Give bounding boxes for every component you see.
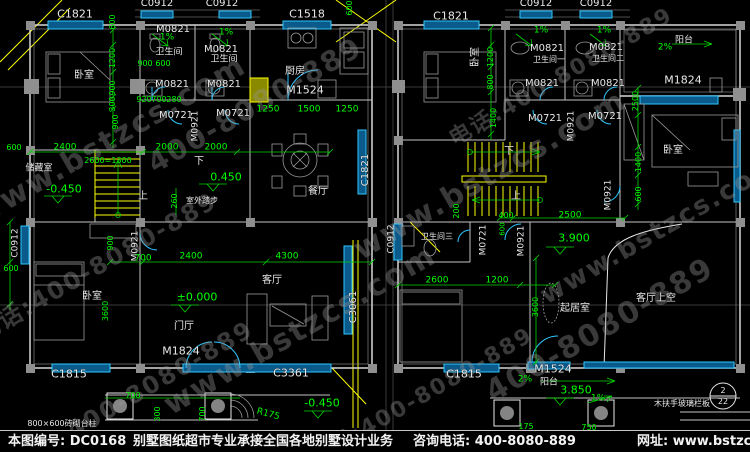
- drawing-number: 本图编号: DC0168: [8, 431, 126, 452]
- floor-plan-canvas: [0, 0, 750, 430]
- void-edge-line: [604, 224, 682, 368]
- info-bar: 本图编号: DC0168 别墅图纸超市专业承接全国各地别墅设计业务 咨询电话: …: [0, 430, 750, 452]
- door-swings: [140, 70, 620, 368]
- stairs: [95, 78, 546, 218]
- cad-drawing-sheet: www.bstzcs.com电话:400-8080-889400-8080-88…: [0, 0, 750, 452]
- website-url: 网址: www.bstzcs.com: [637, 431, 750, 452]
- service-slogan: 别墅图纸超市专业承接全国各地别墅设计业务: [133, 431, 393, 452]
- windows: [21, 11, 740, 372]
- phone-number: 咨询电话: 400-8080-889: [413, 431, 576, 452]
- detail-ref-bubble: [710, 383, 736, 409]
- outer-walls: [30, 25, 740, 368]
